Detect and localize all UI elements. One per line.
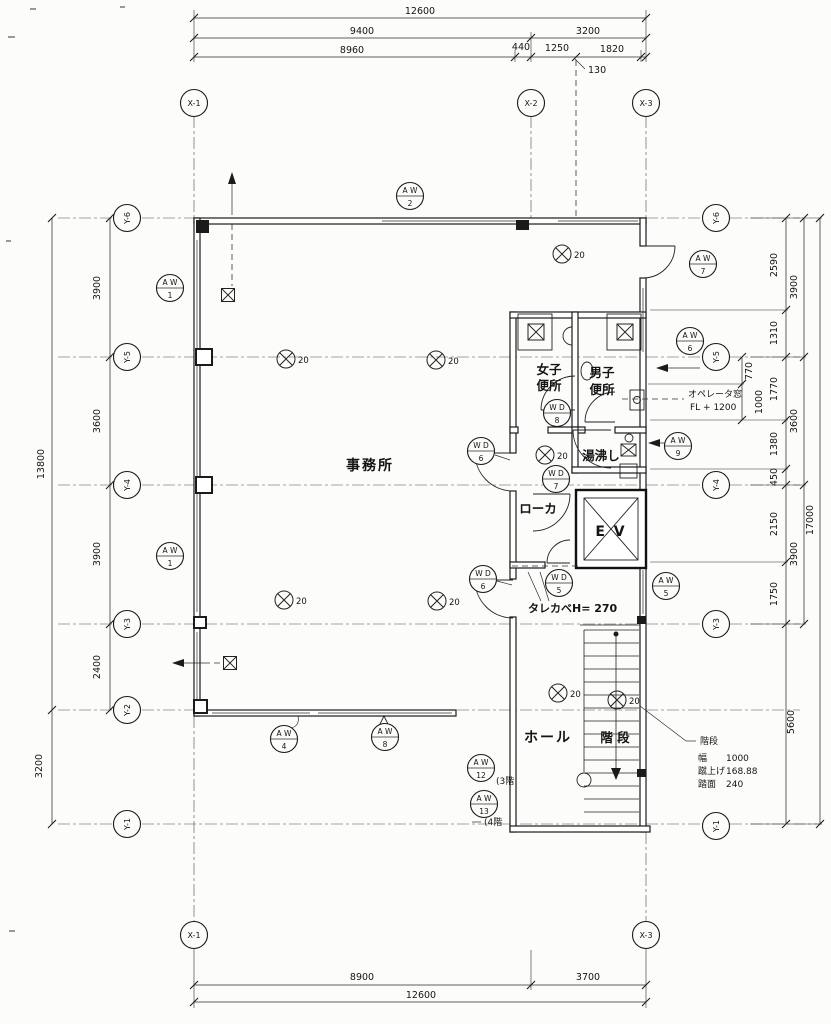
svg-text:8: 8 — [383, 740, 388, 749]
svg-text:13: 13 — [479, 807, 489, 816]
svg-text:X-2: X-2 — [524, 99, 537, 108]
dim-right-o3900b: 3900 — [789, 542, 800, 566]
grid-bubble-y6-left: Y-6 — [114, 205, 141, 232]
grid-bubble-y6-right: Y-6 — [703, 205, 730, 232]
svg-text:12: 12 — [476, 771, 486, 780]
dim-right-1380: 1380 — [769, 432, 780, 456]
svg-text:W D: W D — [548, 469, 564, 478]
room-label-yuwakashi: 湯沸し — [582, 448, 620, 463]
svg-text:W D: W D — [473, 441, 489, 450]
svg-text:9: 9 — [676, 449, 681, 458]
svg-text:20: 20 — [448, 357, 459, 367]
svg-text:A W: A W — [378, 727, 394, 736]
wd-symbol-6a: W D6 — [468, 438, 495, 465]
dimension-labels: 12600 9400 3200 8960 440 1250 1820 130 8… — [34, 6, 816, 1001]
dim-left-overall: 13800 — [36, 449, 47, 479]
column — [516, 220, 529, 230]
dim-right-o3900a: 3900 — [789, 275, 800, 299]
stair-note-title: 階段 — [700, 735, 718, 747]
stair-newel — [577, 773, 591, 787]
stair-note-width-label: 幅 — [698, 752, 707, 764]
aw-symbol-4: A W4 — [271, 726, 298, 753]
wash-basin — [563, 327, 572, 345]
column — [194, 617, 206, 628]
dim-right-overall: 17000 — [805, 505, 816, 535]
column — [196, 477, 212, 493]
svg-text:X-1: X-1 — [187, 931, 200, 940]
svg-text:Y-3: Y-3 — [712, 618, 721, 631]
dim-left-3200: 3200 — [34, 754, 45, 778]
room-label-womens-2: 便所 — [536, 378, 562, 393]
light-symbol: 20 — [553, 245, 585, 263]
light-symbol: 20 — [536, 446, 568, 464]
light-symbol: 20 — [549, 684, 581, 702]
svg-text:20: 20 — [570, 690, 581, 700]
column — [194, 700, 207, 713]
toilet-symbol — [617, 324, 633, 340]
steel-post — [637, 616, 646, 624]
svg-text:20: 20 — [449, 598, 460, 608]
svg-text:2: 2 — [408, 199, 413, 208]
mens-stall — [607, 314, 641, 350]
aw-symbol-7: A W7 — [690, 251, 717, 278]
svg-text:A W: A W — [671, 436, 687, 445]
stair-note-tread: 240 — [726, 780, 743, 790]
stair-note-riser-label: 蹴上げ — [698, 765, 725, 777]
svg-text:5: 5 — [557, 586, 562, 595]
dim-bottom-overall: 12600 — [406, 990, 436, 1001]
tarekabe-note: タレカベH= 270 — [528, 602, 618, 615]
wall-hall-west — [510, 617, 516, 832]
room-label-womens-1: 女子 — [536, 362, 562, 377]
dim-right-1770: 1770 — [769, 377, 780, 401]
elevator: E V — [576, 490, 646, 568]
dim-top-1820: 1820 — [600, 44, 624, 55]
wall-toilet-bottom — [615, 427, 646, 433]
grid-bubble-x3-bottom: X-3 — [633, 922, 660, 949]
grid-bubble-x2-top: X-2 — [518, 90, 545, 117]
dim-right-1310: 1310 — [769, 321, 780, 345]
vent-triangle — [380, 716, 388, 724]
svg-text:Y-4: Y-4 — [123, 479, 132, 492]
grid-bubble-y3-right: Y-3 — [703, 611, 730, 638]
light-symbol: 20 — [275, 591, 307, 609]
svg-text:6: 6 — [688, 344, 693, 353]
grid-bubble-y2-left: Y-2 — [114, 697, 141, 724]
room-label-elevator: E V — [595, 524, 626, 540]
svg-text:W D: W D — [549, 403, 565, 412]
grid-bubble-x1-top: X-1 — [181, 90, 208, 117]
svg-text:A W: A W — [163, 546, 179, 555]
grid-bubble-y1-left: Y-1 — [114, 811, 141, 838]
svg-text:Y-4: Y-4 — [712, 479, 721, 492]
room-label-mens-2: 便所 — [589, 382, 615, 397]
svg-text:X-1: X-1 — [187, 99, 200, 108]
grid-bubble-y5-right: Y-5 — [703, 344, 730, 371]
aw-symbol-2: A W2 — [397, 183, 424, 210]
dim-left-3600: 3600 — [92, 409, 103, 433]
dim-right-5600: 5600 — [786, 710, 797, 734]
svg-text:20: 20 — [298, 356, 309, 366]
wall-lobby-bottom — [510, 562, 545, 568]
svg-text:W D: W D — [551, 573, 567, 582]
room-label-hall: ホール — [524, 730, 572, 746]
svg-text:4: 4 — [282, 742, 287, 751]
left-arrow — [172, 659, 184, 667]
svg-text:6: 6 — [481, 582, 486, 591]
svg-text:A W: A W — [474, 758, 490, 767]
dim-bottom-3700: 3700 — [576, 972, 600, 983]
dim-right-1000: 1000 — [754, 390, 765, 414]
column — [196, 220, 209, 233]
operator-note-1: オペレータ窓 — [688, 388, 742, 400]
light-symbol: 20 — [608, 691, 640, 709]
aw-symbol-12: A W12 — [468, 755, 495, 782]
wd-symbol-7: W D7 — [543, 466, 570, 493]
room-label-stairs: 階 段 — [600, 730, 630, 745]
wall-right-upper — [640, 218, 646, 246]
svg-text:Y-5: Y-5 — [123, 351, 132, 364]
svg-text:W D: W D — [475, 569, 491, 578]
aw-symbol-9: A W9 — [665, 433, 692, 460]
svg-text:20: 20 — [574, 251, 585, 261]
entrance-door-arc — [643, 246, 675, 278]
svg-text:8: 8 — [555, 416, 560, 425]
dim-bottom-8900: 8900 — [350, 972, 374, 983]
svg-text:5: 5 — [664, 589, 669, 598]
svg-text:A W: A W — [659, 576, 675, 585]
grid-bubble-y4-right: Y-4 — [703, 472, 730, 499]
svg-text:Y-3: Y-3 — [123, 618, 132, 631]
svg-text:A W: A W — [477, 794, 493, 803]
svg-text:A W: A W — [277, 729, 293, 738]
dim-right-770: 770 — [744, 362, 755, 380]
dim-right-o3600: 3600 — [789, 409, 800, 433]
dim-right-2150: 2150 — [769, 512, 780, 536]
aw-symbol-1a: A W1 — [157, 275, 184, 302]
svg-text:A W: A W — [163, 278, 179, 287]
room-label-office: 事務所 — [346, 457, 394, 474]
svg-text:20: 20 — [296, 597, 307, 607]
svg-text:6: 6 — [479, 454, 484, 463]
operator-note-2: FL + 1200 — [690, 403, 737, 413]
wall-toilet-divider — [572, 312, 578, 433]
light-symbol: 20 — [277, 350, 309, 368]
light-symbol: 20 — [427, 351, 459, 369]
svg-text:20: 20 — [557, 452, 568, 462]
sink — [625, 434, 633, 442]
grid-bubble-y5-left: Y-5 — [114, 344, 141, 371]
svg-text:Y-6: Y-6 — [712, 212, 721, 225]
svg-text:Y-1: Y-1 — [712, 820, 721, 833]
wd-symbol-5: W D5 — [546, 570, 573, 597]
svg-text:Y-6: Y-6 — [123, 212, 132, 225]
svg-text:A W: A W — [403, 186, 419, 195]
womens-stall — [518, 314, 552, 350]
dim-left-3900b: 3900 — [92, 542, 103, 566]
svg-text:A W: A W — [696, 254, 712, 263]
aw-symbol-13: A W13 — [471, 791, 498, 818]
dim-top-overall: 12600 — [405, 6, 435, 17]
aw12-floor-note: (3階 — [496, 776, 514, 787]
dimension-lines — [48, 10, 824, 1008]
grid-bubble-y4-left: Y-4 — [114, 472, 141, 499]
svg-text:X-3: X-3 — [639, 99, 652, 108]
stairs — [577, 625, 640, 812]
wd-symbol-8: W D8 — [544, 400, 571, 427]
column — [196, 349, 212, 365]
dim-left-3900a: 3900 — [92, 276, 103, 300]
grid-bubble-x1-bottom: X-1 — [181, 922, 208, 949]
grid-bubble-y3-left: Y-3 — [114, 611, 141, 638]
light-symbol: 20 — [428, 592, 460, 610]
left-arrow — [656, 364, 668, 372]
stair-down-arrow — [611, 768, 621, 780]
grid-bubble-y1-right: Y-1 — [703, 813, 730, 840]
toilet-symbol — [528, 324, 544, 340]
dim-top-9400: 9400 — [350, 26, 374, 37]
svg-text:Y-5: Y-5 — [712, 351, 721, 364]
svg-text:X-3: X-3 — [639, 931, 652, 940]
switch-box — [224, 657, 237, 670]
aw-symbol-8: A W8 — [372, 724, 399, 751]
svg-text:7: 7 — [554, 482, 559, 491]
room-label-mens-1: 男子 — [589, 365, 615, 380]
svg-text:1: 1 — [168, 291, 173, 300]
scan-specks — [6, 6, 125, 932]
left-arrow — [648, 439, 660, 447]
room-label-corridor: ローカ — [519, 501, 557, 516]
floor-plan-sheet: 12600 9400 3200 8960 440 1250 1820 130 8… — [0, 0, 831, 1024]
aw13-floor-note: (4階 — [484, 817, 502, 828]
dim-right-450: 450 — [769, 468, 780, 486]
svg-text:1: 1 — [168, 559, 173, 568]
aw-symbol-5: A W5 — [653, 573, 680, 600]
stair-note-riser: 168.88 — [726, 767, 758, 777]
switch-box — [222, 289, 235, 302]
stair-note-width: 1000 — [726, 754, 749, 764]
dim-right-1750: 1750 — [769, 582, 780, 606]
svg-text:Y-1: Y-1 — [123, 818, 132, 831]
wall-hall-bottom — [510, 826, 650, 832]
svg-text:Y-2: Y-2 — [123, 704, 132, 717]
up-arrow — [228, 172, 236, 184]
aw-symbol-1b: A W1 — [157, 543, 184, 570]
dim-top-1250: 1250 — [545, 43, 569, 54]
floor-plan-drawing: 12600 9400 3200 8960 440 1250 1820 130 8… — [0, 0, 831, 1024]
dim-top-3200: 3200 — [576, 26, 600, 37]
stair-note-tread-label: 踏面 — [698, 778, 716, 790]
dim-left-2400: 2400 — [92, 655, 103, 679]
svg-text:20: 20 — [629, 697, 640, 707]
aw-symbol-6: A W6 — [677, 328, 704, 355]
dim-top-8960: 8960 — [340, 45, 364, 56]
dim-right-2590: 2590 — [769, 253, 780, 277]
svg-text:7: 7 — [701, 267, 706, 276]
lobby-door-arc — [547, 540, 570, 563]
grid-bubble-x3-top: X-3 — [633, 90, 660, 117]
wd-symbol-6b: W D6 — [470, 566, 497, 593]
svg-text:A W: A W — [683, 331, 699, 340]
dim-top-130: 130 — [588, 65, 606, 76]
dim-top-440: 440 — [512, 42, 530, 53]
